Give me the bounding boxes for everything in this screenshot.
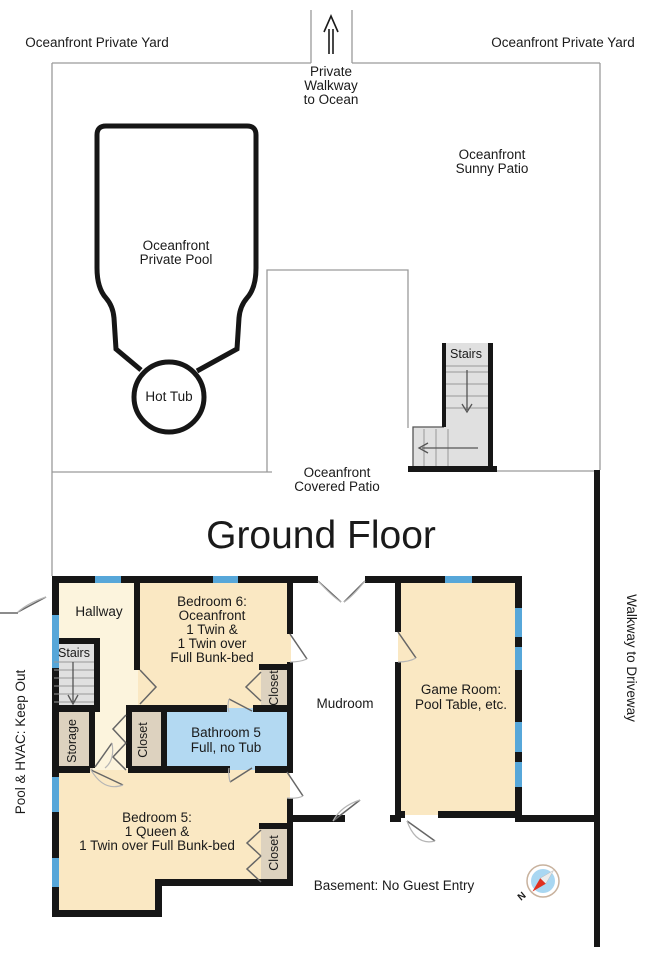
bathroom5-label: Bathroom 5 Full, no Tub [191,725,262,755]
svg-text:Oceanfront: Oceanfront [459,147,526,162]
storage-label: Storage [65,719,79,763]
patio-stairs: Stairs [408,343,497,472]
svg-text:Oceanfront: Oceanfront [304,465,371,480]
compass-icon: N [516,865,559,903]
walkway-arrow-icon [324,16,338,54]
sunny-patio-label: Oceanfront Sunny Patio [456,147,529,176]
svg-text:Private Pool: Private Pool [140,252,213,267]
svg-text:to Ocean: to Ocean [304,92,359,107]
pool-label: Oceanfront Private Pool [140,238,213,267]
yard-right-label: Oceanfront Private Yard [491,35,635,50]
walkway-label: Private Walkway to Ocean [304,64,359,107]
svg-text:Private: Private [310,64,352,79]
svg-text:Bedroom 6:: Bedroom 6: [177,594,247,609]
svg-text:Walkway: Walkway [304,78,358,93]
svg-text:1 Queen &: 1 Queen & [125,824,190,839]
svg-text:Oceanfront: Oceanfront [143,238,210,253]
floor-plan-drawing: Stairs [0,0,651,960]
svg-text:1 Twin &: 1 Twin & [186,622,238,637]
game-room-label: Game Room: Pool Table, etc. [415,682,507,712]
hot-tub-label: Hot Tub [145,389,192,404]
bedroom5-closet-label: Closet [267,835,281,871]
walkway-driveway-note: Walkway to Driveway [624,594,639,722]
svg-text:1 Twin over Full Bunk-bed: 1 Twin over Full Bunk-bed [79,838,235,853]
svg-text:Full Bunk-bed: Full Bunk-bed [170,650,253,665]
svg-text:Full, no Tub: Full, no Tub [191,740,262,755]
covered-patio-label: Oceanfront Covered Patio [294,465,380,494]
mudroom-label: Mudroom [316,696,373,711]
hall-closet-label: Closet [136,722,150,758]
svg-text:Pool Table, etc.: Pool Table, etc. [415,697,507,712]
pool-hvac-note: Pool & HVAC: Keep Out [13,669,28,814]
page-title: Ground Floor [206,514,436,557]
basement-note: Basement: No Guest Entry [314,878,475,893]
svg-text:Game Room:: Game Room: [421,682,501,697]
svg-text:Oceanfront: Oceanfront [179,608,246,623]
interior-stairs-label: Stairs [58,646,90,660]
patio-stairs-label: Stairs [450,347,482,361]
yard-left-label: Oceanfront Private Yard [25,35,169,50]
compass-north-label: N [516,890,529,903]
svg-text:Covered Patio: Covered Patio [294,479,380,494]
floor-plan-page: Stairs [0,0,651,960]
svg-text:Sunny Patio: Sunny Patio [456,161,529,176]
hallway-label: Hallway [75,604,123,619]
svg-text:1 Twin over: 1 Twin over [178,636,247,651]
svg-text:Bedroom 5:: Bedroom 5: [122,810,192,825]
pool-outline [97,126,256,432]
bedroom6-closet-label: Closet [267,670,281,706]
svg-text:Bathroom 5: Bathroom 5 [191,725,261,740]
